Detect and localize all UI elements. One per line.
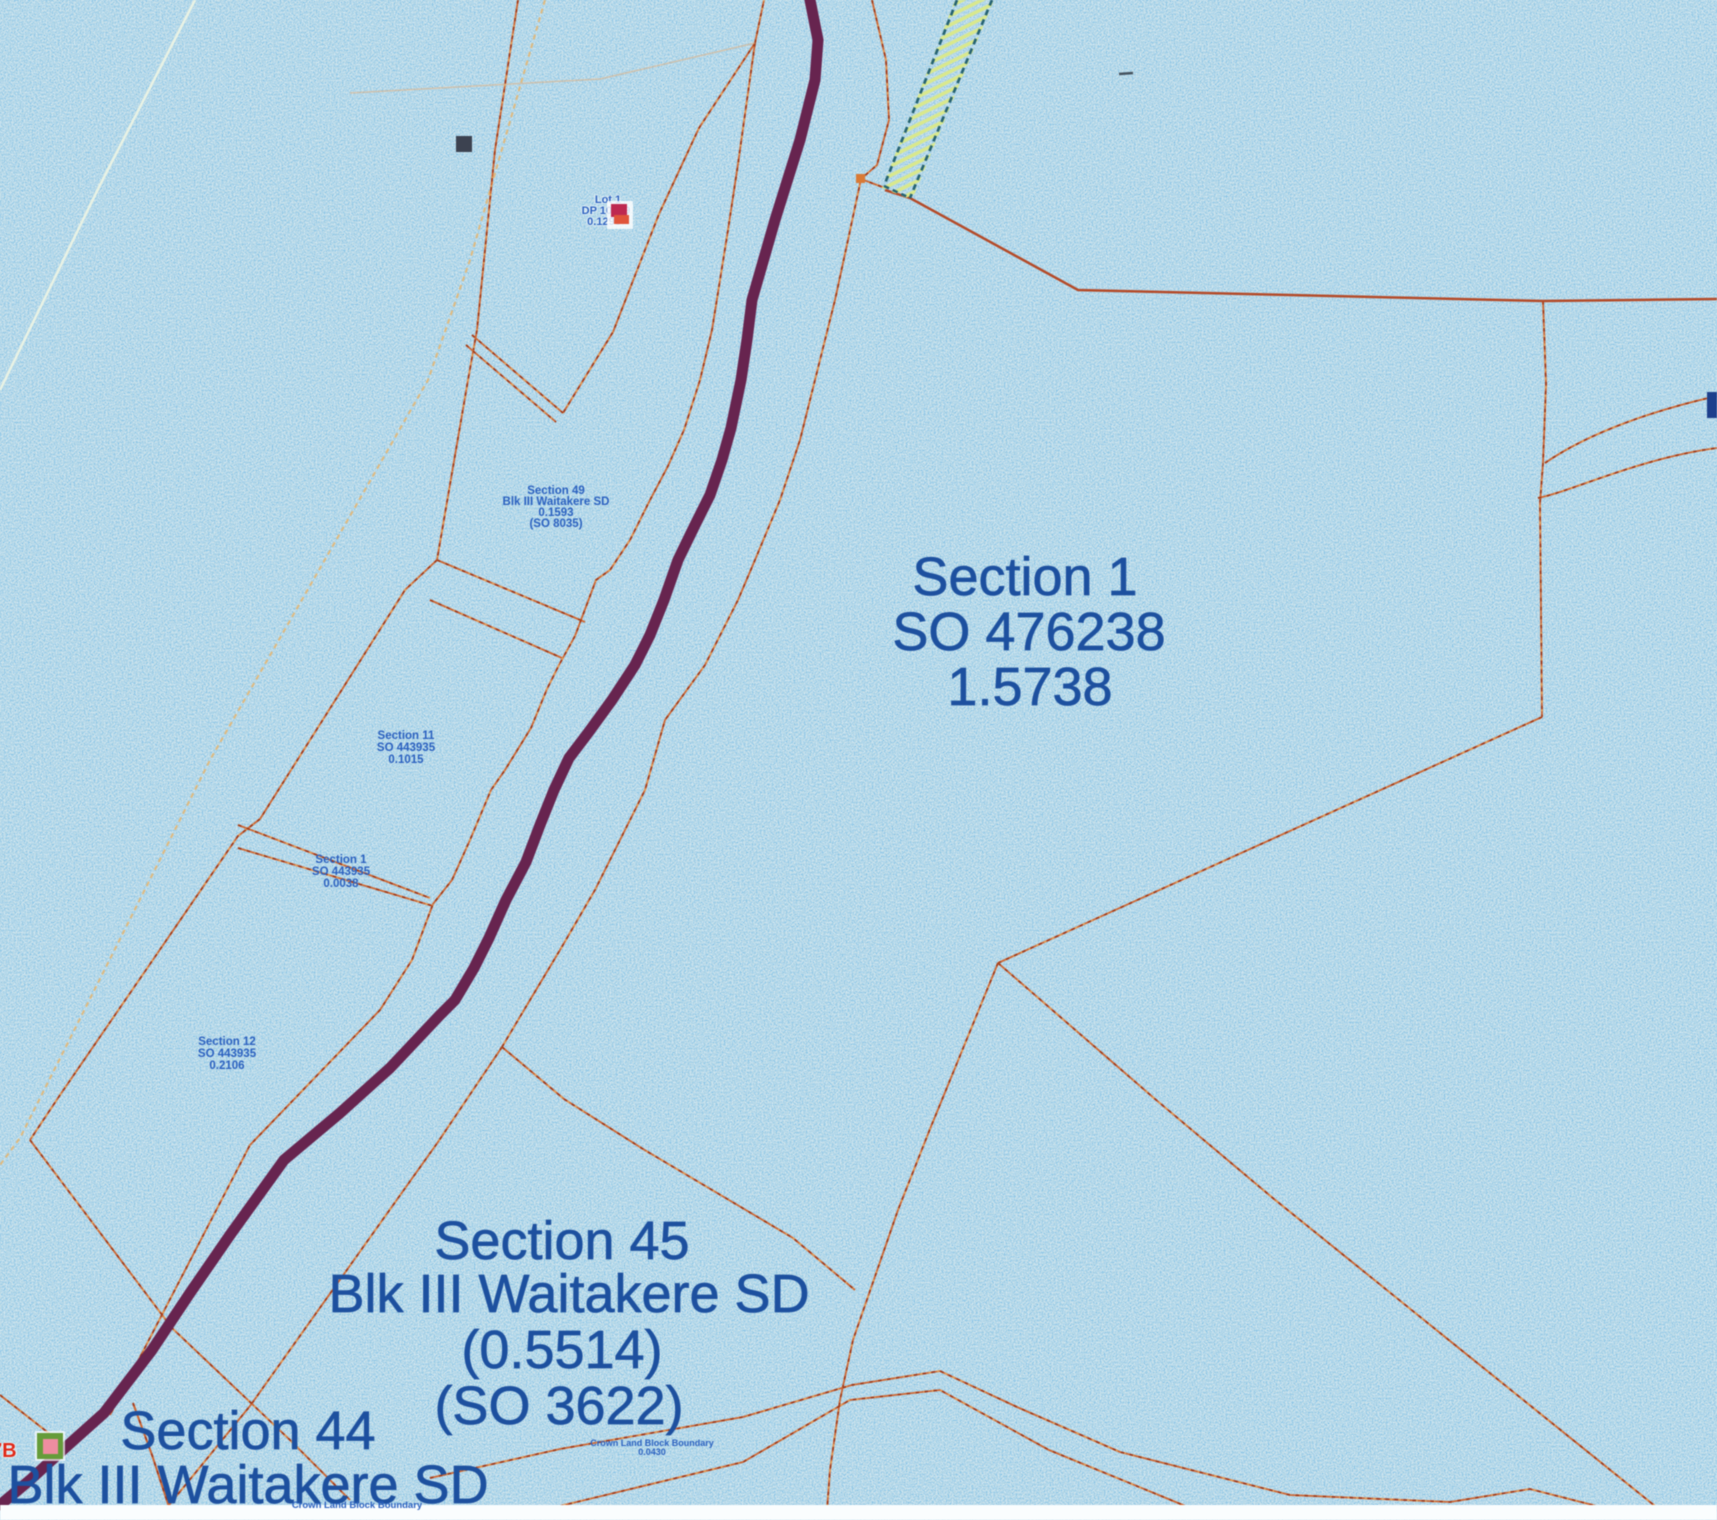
svg-text:7B: 7B [0, 1440, 17, 1462]
svg-text:(0.5514): (0.5514) [461, 1320, 662, 1380]
svg-text:Section 1: Section 1 [315, 854, 367, 866]
svg-text:Section 12: Section 12 [198, 1036, 256, 1048]
svg-text:SO 476238: SO 476238 [892, 602, 1165, 662]
svg-text:Section 11: Section 11 [378, 730, 435, 742]
svg-text:Crown Land Block Boundary: Crown Land Block Boundary [292, 1500, 423, 1511]
svg-text:SO 443935: SO 443935 [312, 866, 371, 878]
svg-text:0.2106: 0.2106 [209, 1060, 244, 1072]
svg-text:0.0038: 0.0038 [323, 878, 359, 890]
svg-text:0.1015: 0.1015 [388, 754, 424, 766]
svg-text:SO 443935: SO 443935 [198, 1048, 257, 1060]
svg-text:Section 1: Section 1 [912, 547, 1137, 607]
svg-text:Section 44: Section 44 [120, 1401, 375, 1461]
svg-text:1.5738: 1.5738 [947, 657, 1112, 717]
svg-text:0.0430: 0.0430 [638, 1447, 666, 1457]
svg-text:SO 443935: SO 443935 [377, 742, 436, 754]
svg-text:(SO 8035): (SO 8035) [529, 518, 582, 530]
svg-text:Section 45: Section 45 [434, 1211, 689, 1271]
svg-text:Blk III Waitakere SD: Blk III Waitakere SD [328, 1264, 809, 1324]
svg-text:(SO 3622): (SO 3622) [434, 1376, 683, 1436]
